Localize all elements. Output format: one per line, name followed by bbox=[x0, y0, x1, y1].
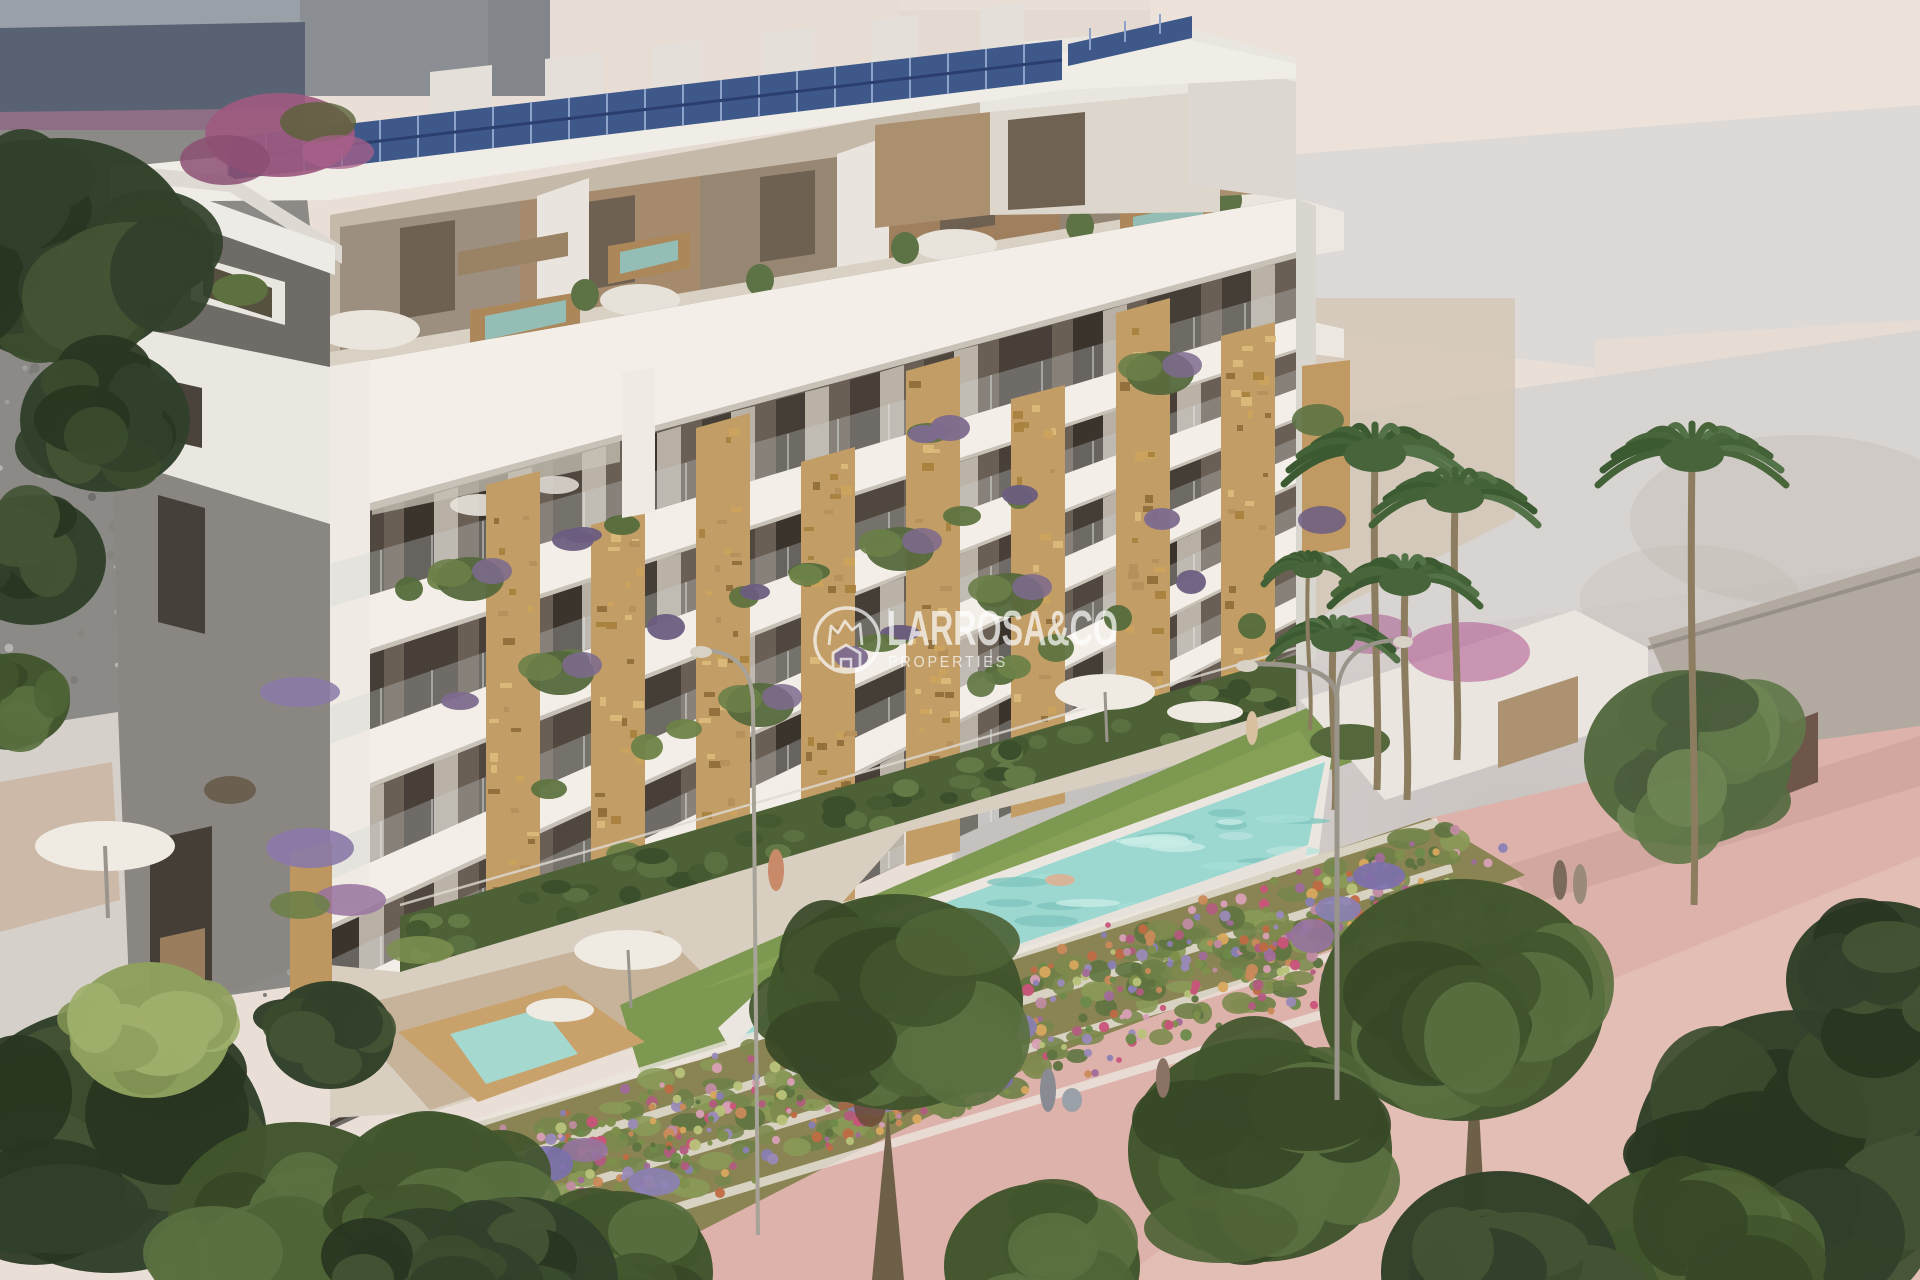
svg-text:PROPERTIES: PROPERTIES bbox=[888, 654, 1008, 671]
svg-text:LARROSA&CO: LARROSA&CO bbox=[887, 602, 1118, 656]
